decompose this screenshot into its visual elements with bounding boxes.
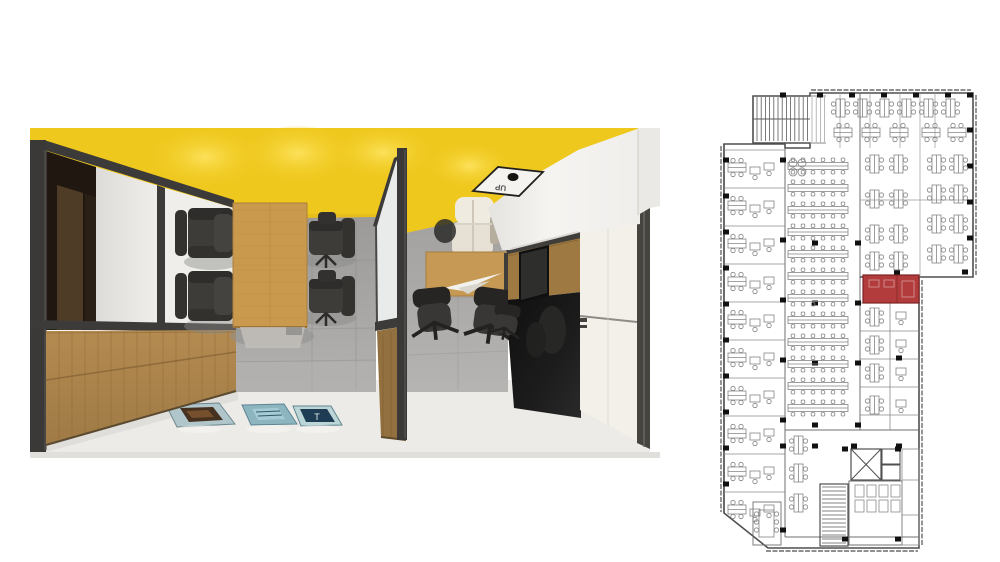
svg-text:UP: UP (494, 182, 507, 192)
svg-text:T: T (314, 412, 320, 422)
